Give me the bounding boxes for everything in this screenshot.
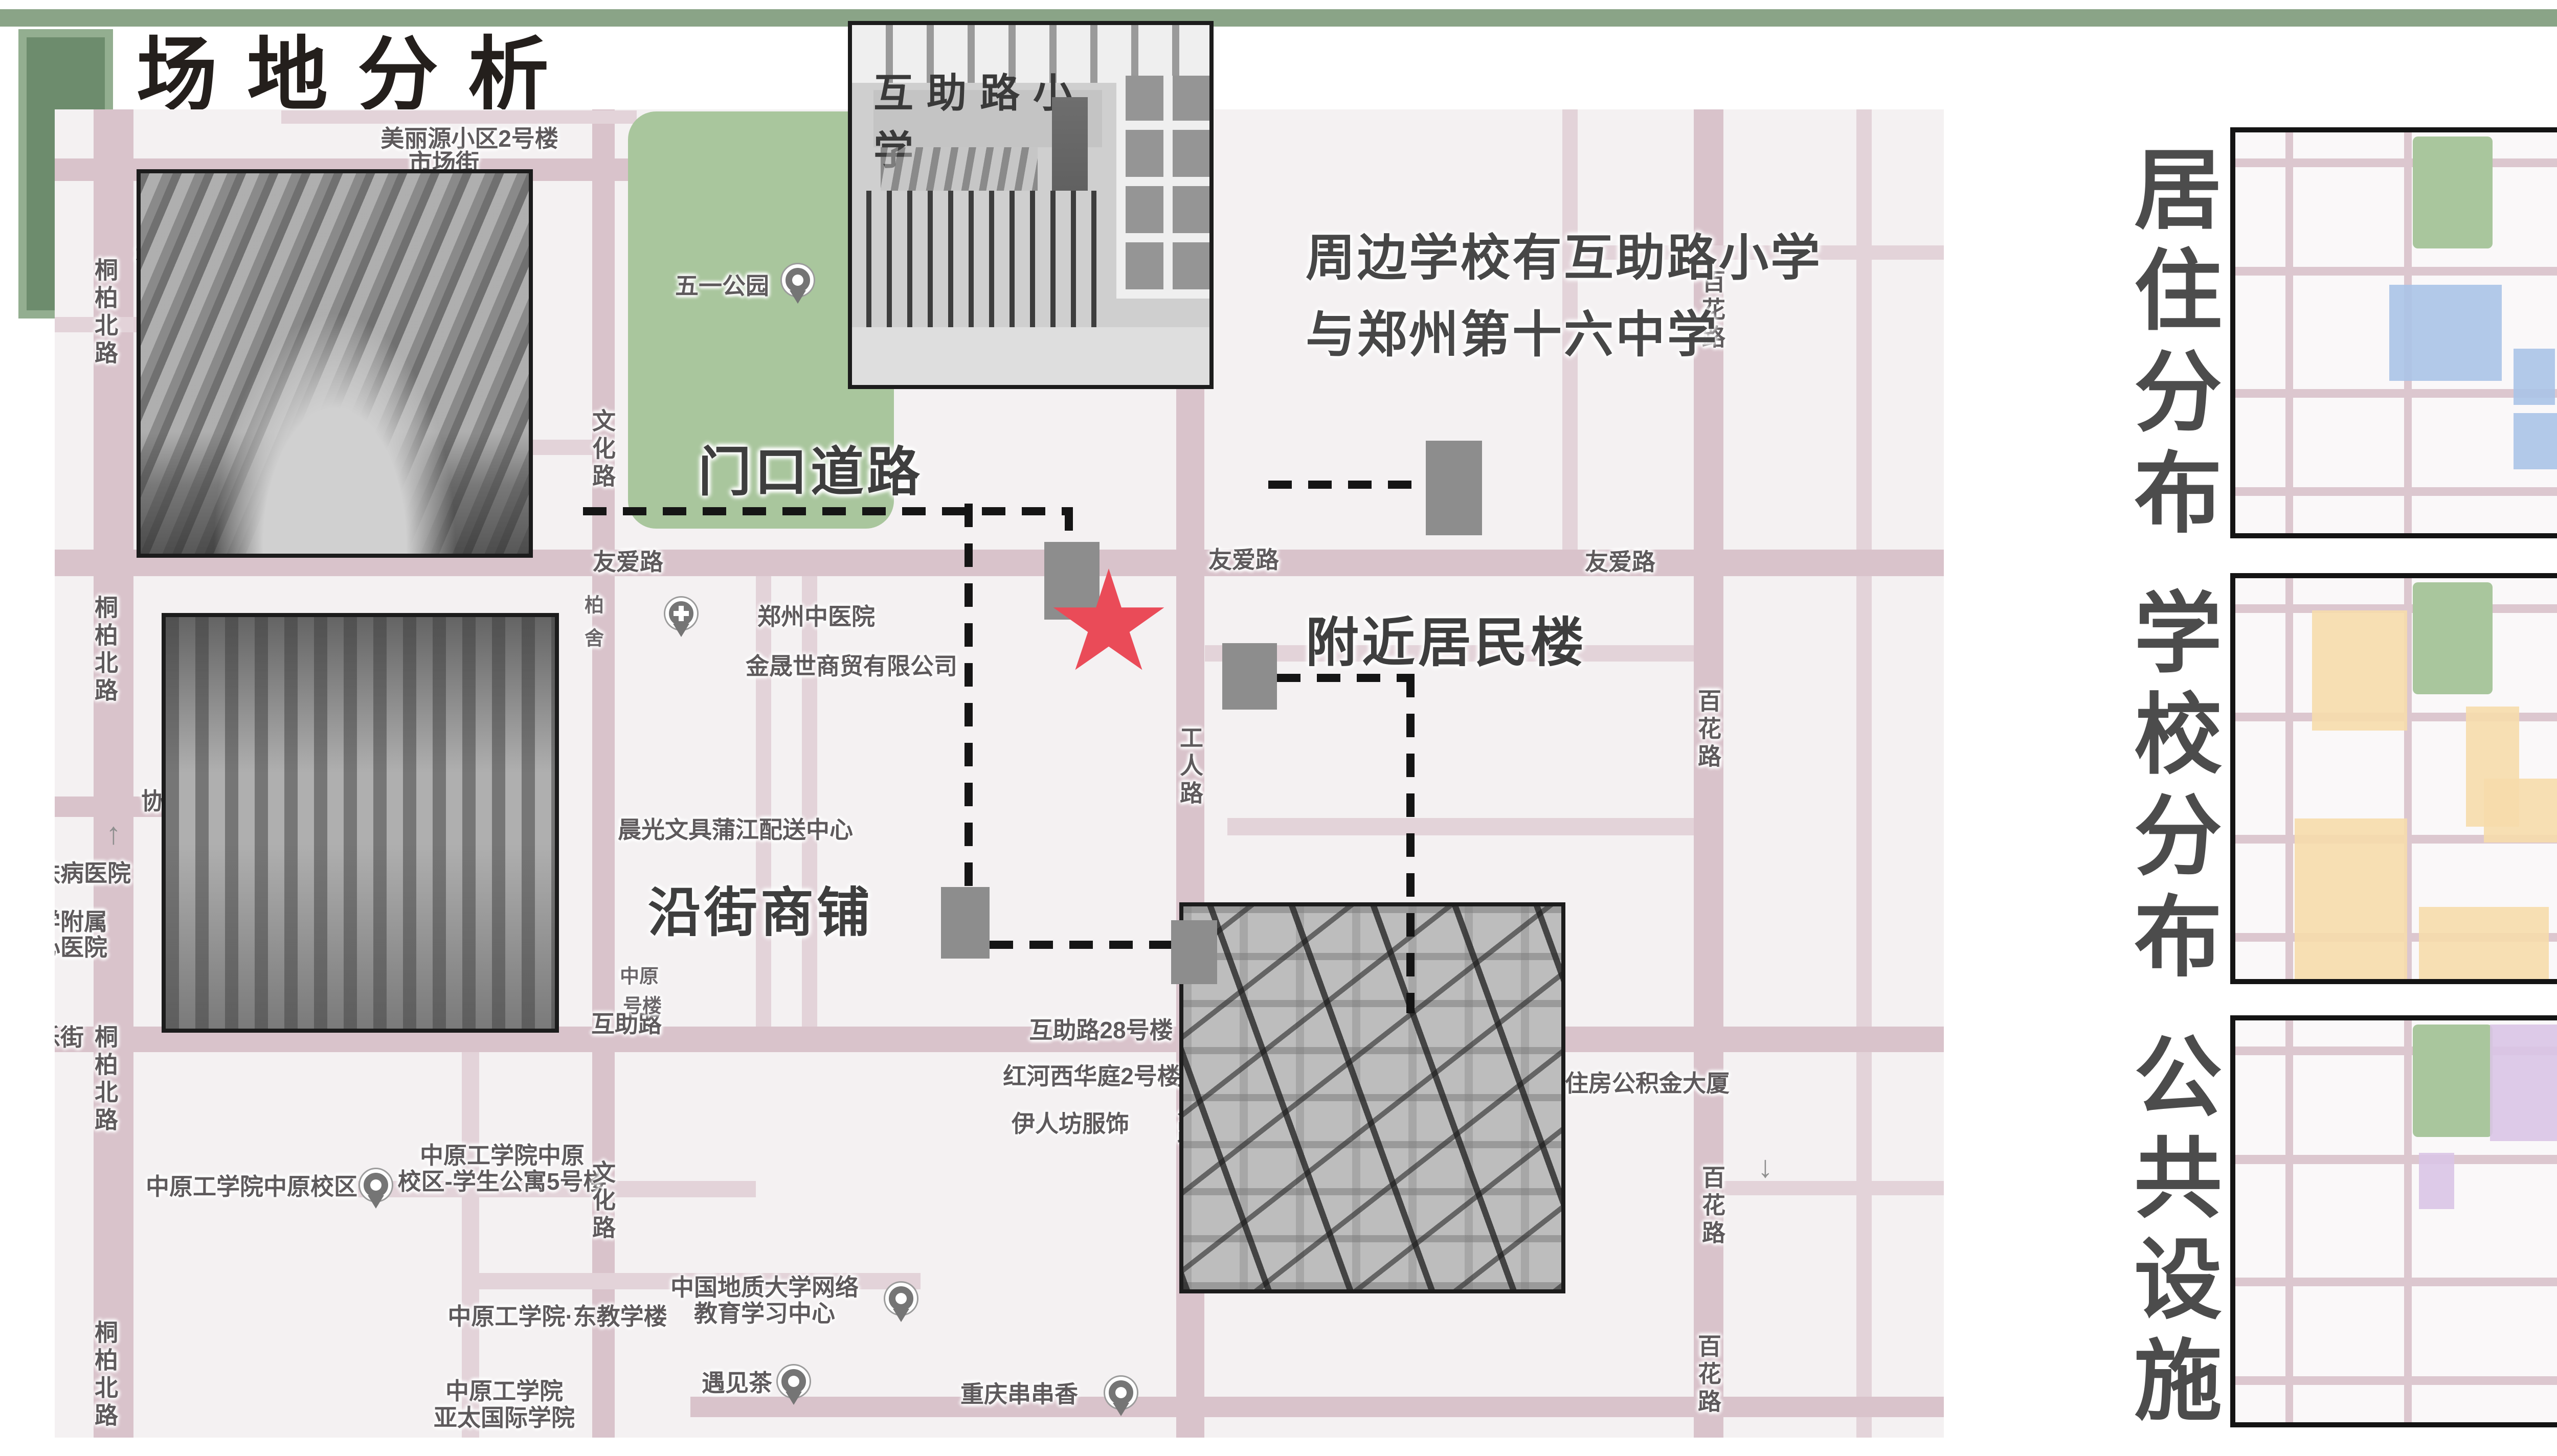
map-place-label: 州中心医院 [55, 929, 107, 963]
school-pin-icon [885, 1283, 917, 1314]
road [690, 1397, 1944, 1417]
page-title: 场地分析 [137, 9, 578, 126]
map-place-label: 友爱路 [593, 543, 663, 577]
street-direction-arrow-icon: ↓ [1758, 1149, 1773, 1185]
map-place-label: 校区-学生公寓5号楼 [398, 1163, 607, 1197]
annotation-nearby-schools: 周边学校有互助路小学 与郑州第十六中学 [1306, 220, 1822, 374]
photo-street-shops [162, 613, 559, 1033]
pin-glyph [370, 1179, 382, 1191]
minimap-road [2235, 1155, 2557, 1164]
annotation-gate-road: 门口道路 [698, 428, 923, 506]
annotation-residential: 附近居民楼 [1306, 599, 1587, 676]
pin-glyph [792, 275, 803, 286]
connector-dashed-line [965, 504, 973, 887]
school-pin-icon [360, 1169, 392, 1201]
map-place-label: 中原工学院·东教学楼 [447, 1298, 667, 1332]
road [1723, 1181, 1944, 1195]
road-name-label: 文化路 [586, 1160, 619, 1243]
minimap-road [2235, 1278, 2557, 1286]
map-place-label: 亚太国际学院 [434, 1399, 575, 1433]
map-place-label: 郑州中医院 [757, 598, 875, 632]
map-place-label: 金晟世商贸有限公司 [746, 648, 957, 681]
road-name-label: 百花路 [1695, 1165, 1729, 1248]
distribution-patch [2295, 818, 2407, 979]
road [1227, 818, 1694, 835]
minimap-school-distribution [2230, 573, 2557, 984]
map-place-label: 康乐街 [55, 1019, 84, 1053]
minimap-road [2235, 487, 2557, 496]
map-place-label: 号楼 [623, 990, 662, 1018]
map-place-label: 住房公积金大厦 [1565, 1065, 1730, 1099]
minimap-road [2285, 132, 2293, 533]
distribution-patch [2419, 1153, 2454, 1209]
panel-label-public: 公共设施 [2106, 1031, 2234, 1436]
panel-label-residential: 居住分布 [2106, 143, 2234, 548]
road-name-label: 桐柏北路 [88, 1025, 122, 1135]
photo-detail [866, 191, 1102, 335]
map-place-label: 遇见茶 [702, 1364, 772, 1398]
annotation-line: 周边学校有互助路小学 [1306, 220, 1822, 297]
slide-canvas: { "header": { "title": "场地分析" }, "colors… [0, 0, 2557, 1456]
distribution-patch [2389, 285, 2502, 381]
map-marker [1171, 920, 1217, 984]
map-place-label: 友爱路 [1585, 543, 1655, 577]
connector-dashed-line [1268, 481, 1426, 489]
connector-dashed-line [583, 507, 1069, 515]
distribution-patch [2312, 610, 2407, 731]
minimap-road [2235, 158, 2557, 167]
map-place-label: 市皮肤病医院 [55, 855, 131, 889]
panel-label-schools: 学校分布 [2106, 587, 2234, 992]
minimap-park-area [2413, 1025, 2493, 1137]
connector-dashed-line [1065, 507, 1073, 543]
pin-glyph [1115, 1387, 1127, 1398]
minimap-road [2285, 578, 2293, 979]
annotation-shops: 沿街商铺 [648, 869, 873, 946]
connector-dashed-line [990, 941, 1171, 949]
minimap-road [2235, 389, 2557, 398]
map-marker [941, 887, 990, 959]
map-place-label: 柏 [585, 589, 604, 618]
pin-glyph [672, 605, 690, 622]
map-place-label: 友爱路 [1208, 541, 1279, 575]
distribution-patch [2514, 349, 2555, 405]
road [802, 567, 817, 1028]
map-place-label: 教育学习中心 [694, 1295, 835, 1329]
minimap-road [2285, 1020, 2293, 1422]
street-direction-arrow-icon: ↑ [106, 816, 121, 851]
minimap-public-facilities [2230, 1015, 2557, 1427]
map-marker [1426, 441, 1482, 535]
distribution-patch [2514, 413, 2557, 469]
map-place-label: 晨光文具蒲江配送中心 [618, 811, 853, 845]
road-name-label: 百花路 [1691, 689, 1725, 771]
road-name-label: 工人路 [1173, 725, 1207, 808]
minimap-road [2235, 1376, 2557, 1385]
pin-glyph [788, 1376, 799, 1387]
road-name-label: 桐柏北路 [88, 258, 122, 368]
minimap-road [2404, 1020, 2412, 1422]
minimap-park-area [2413, 136, 2493, 249]
park-pin-icon [782, 264, 814, 296]
distribution-patch [2484, 779, 2557, 843]
map-place-label: 舍 [585, 623, 604, 651]
photo-detail [1116, 76, 1209, 299]
road [756, 567, 771, 1048]
photo-school-gate: 互助路小学 [848, 21, 1214, 389]
hospital-pin-icon [665, 598, 697, 629]
photo-gate-road [137, 169, 533, 558]
map-place-label: 重庆串串香 [960, 1376, 1078, 1409]
photo-detail [852, 327, 1209, 385]
map-place-label: 互助路28号楼 [1029, 1012, 1173, 1045]
food-pin-icon [1105, 1377, 1137, 1408]
minimap-park-area [2413, 582, 2493, 695]
pin-glyph [895, 1293, 907, 1304]
map-place-label: 红河西华庭2号楼 [1003, 1058, 1181, 1091]
road-name-label: 百花路 [1691, 1334, 1725, 1417]
road-name-label: 桐柏北路 [88, 595, 122, 706]
map-marker [1222, 643, 1277, 710]
distribution-patch [2490, 1025, 2557, 1141]
road-name-label: 桐柏北路 [88, 1320, 122, 1430]
map-place-label: 五一公园 [675, 267, 769, 301]
map-place-label: 伊人坊服饰 [1012, 1105, 1129, 1139]
connector-dashed-line [1406, 674, 1415, 1013]
road [1856, 109, 1872, 1438]
minimap-road [2235, 267, 2557, 276]
map-place-label: 中原工学院中原校区 [146, 1168, 357, 1202]
photo-residential-building [1179, 902, 1565, 1293]
distribution-patch [2419, 907, 2549, 979]
food-pin-icon [778, 1366, 810, 1397]
minimap-residential-distribution [2230, 127, 2557, 538]
road-name-label: 文化路 [586, 408, 619, 491]
map-place-label: 中原 [620, 961, 659, 989]
annotation-line: 与郑州第十六中学 [1306, 297, 1822, 373]
